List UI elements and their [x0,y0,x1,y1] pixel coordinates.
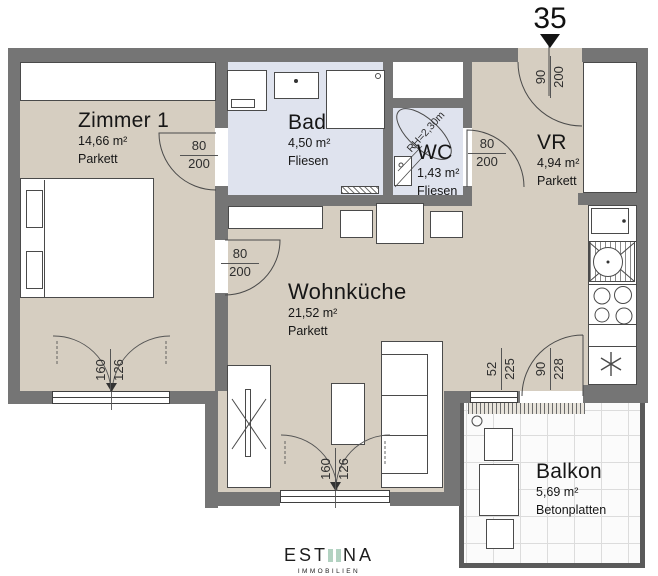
sofa-cushion-line [382,435,427,436]
dim-width: 80 [180,139,218,156]
washing-machine-drawer [231,99,255,108]
dim-height: 200 [468,154,506,170]
dim-entry-door: 90 200 [534,56,568,98]
balcony-chair [486,519,514,549]
dining-table [376,203,424,244]
room-area: 4,94 m² [537,156,579,171]
dim-height: 200 [221,264,259,280]
wall [205,492,280,506]
dim-width: 160 [319,448,336,490]
dim-window-zimmer1: 160 126 [94,349,128,391]
dim-window-wohnkueche: 160 126 [319,448,353,490]
room-area: 4,50 m² [288,136,330,151]
dim-height: 225 [502,348,518,390]
room-area: 21,52 m² [288,306,406,321]
dim-width: 80 [221,247,259,264]
shower [326,70,385,129]
room-floor: Betonplatten [536,503,606,518]
wardrobe-vr [583,62,637,193]
dim-height: 200 [180,156,218,172]
counter-divider [589,346,636,347]
room-label-wohnkueche: Wohnküche 21,52 m² Parkett [288,281,406,340]
entry-arrow-icon [540,34,560,48]
wall [444,391,460,506]
room-name: WC [417,142,459,163]
coffee-table [331,383,365,445]
balcony-threshold-hatch [468,403,585,414]
logo-square-icon [328,549,341,562]
room-label-bad: Bad 4,50 m² Fliesen [288,112,330,170]
dim-balcony-window: 52 225 [485,348,519,390]
logo-text-suffix: NA [343,545,374,566]
estona-logo: EST NA IMMOBILIEN [283,545,375,575]
wall [637,48,648,403]
wall [205,391,218,508]
room-label-balkon: Balkon 5,69 m² Betonplatten [536,461,606,519]
kitchen-sink-drainer [589,241,635,282]
room-label-vr: VR 4,94 m² Parkett [537,132,579,190]
room-label-zimmer1: Zimmer 1 14,66 m² Parkett [78,110,169,168]
window-zimmer1 [52,391,170,404]
floor-plan: 35 Zimmer 1 14,66 m² Parkett Bad 4,50 m²… [0,0,658,576]
wall [8,48,20,404]
room-label-wc: WC 1,43 m² Fliesen [417,142,459,200]
dim-height: 126 [336,448,352,490]
dim-width: 90 [534,348,551,390]
dim-door-wc: 80 200 [468,137,506,170]
room-floor: Fliesen [417,184,459,199]
dim-balcony-door: 90 228 [534,348,568,390]
room-name: Bad [288,112,330,133]
dim-width: 160 [94,349,111,391]
logo-wordmark: EST NA [283,545,375,566]
dim-width: 90 [534,56,551,98]
room-floor: Parkett [537,174,579,189]
wall [390,98,472,108]
wall [583,385,648,403]
dining-chair [340,210,373,238]
bathroom-sink [274,72,319,99]
window-balcony-fixed [470,391,518,403]
dim-door-zimmer1-bad: 80 200 [180,139,218,172]
window-mullion [518,391,520,403]
room-floor: Parkett [78,152,169,167]
room-name: Balkon [536,461,606,482]
unit-number: 35 [532,2,568,36]
toilet [394,156,412,186]
bed-headboard-line [44,180,45,297]
room-floor: Fliesen [288,154,330,169]
dim-height: 200 [551,56,567,98]
logo-square-bar [333,549,336,562]
pillow [26,190,43,228]
room-name: VR [537,132,579,153]
dim-height: 228 [551,348,567,390]
sofa-cushion-line [382,395,427,396]
pillow [26,251,43,289]
counter-divider [589,284,636,285]
window-wohnkueche [280,490,390,503]
wall [463,62,472,128]
door-opening-balcony [520,391,583,403]
sofa-seat [381,354,428,474]
room-area: 5,69 m² [536,485,606,500]
dim-door-zimmer1-wohnkueche: 80 200 [221,247,259,280]
room-name: Zimmer 1 [78,110,169,131]
fridge [591,208,629,234]
counter-divider [589,324,636,325]
sideboard [228,206,323,229]
balcony-chair [484,428,513,461]
radiator [341,186,379,194]
wall [8,391,52,404]
dining-chair [430,211,463,238]
sofa [381,341,443,488]
wall [8,48,518,62]
dim-width: 80 [468,137,506,154]
wardrobe-zimmer1 [20,62,216,101]
dim-height: 126 [111,349,127,391]
wall [578,193,640,205]
room-area: 1,43 m² [417,166,459,181]
room-area: 14,66 m² [78,134,169,149]
wall [444,391,470,403]
tv-screen [245,389,251,457]
room-floor: Parkett [288,324,406,339]
room-name: Wohnküche [288,281,406,303]
dim-width: 52 [485,348,502,390]
shaft-niche [393,62,463,98]
balcony-table [479,464,519,516]
logo-subtitle: IMMOBILIEN [283,568,375,575]
logo-text-prefix: EST [284,545,328,566]
wall [463,186,472,197]
